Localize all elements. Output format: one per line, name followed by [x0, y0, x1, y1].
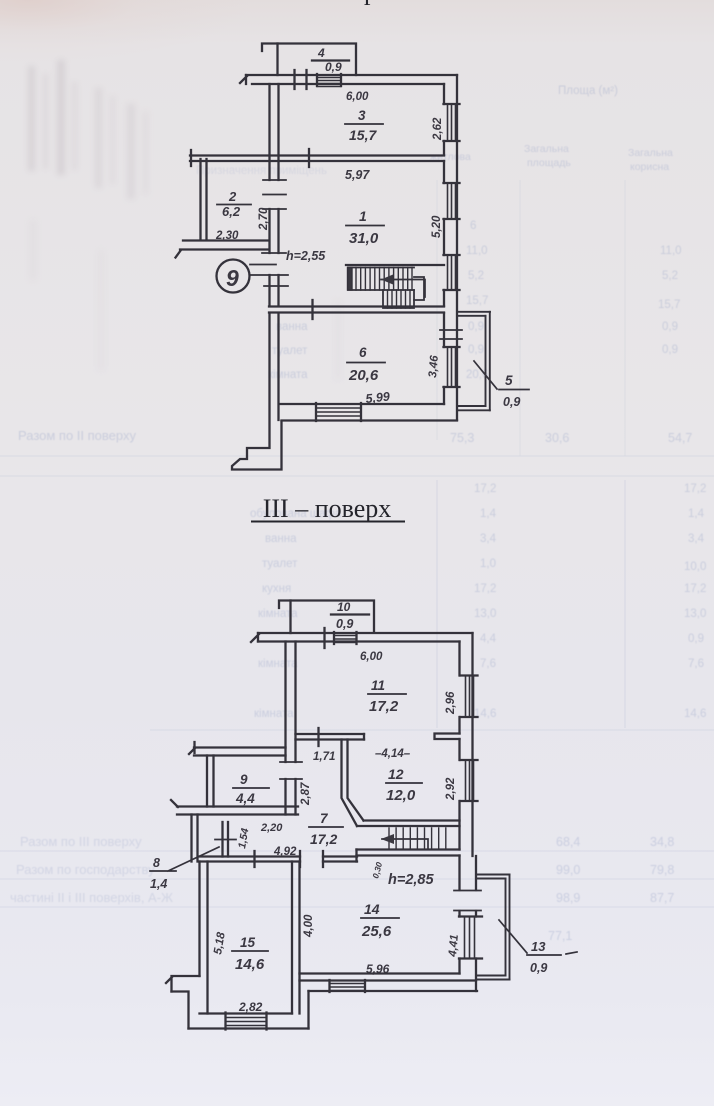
svg-text:5: 5: [505, 373, 513, 388]
svg-text:7,6: 7,6: [480, 658, 496, 670]
svg-text:III – поверх: III – поверх: [263, 494, 392, 523]
svg-text:2,70: 2,70: [258, 207, 270, 231]
svg-text:4,00: 4,00: [303, 914, 315, 938]
svg-text:9: 9: [240, 772, 248, 787]
svg-text:17,2: 17,2: [684, 483, 706, 495]
svg-text:3,4: 3,4: [480, 533, 497, 545]
svg-text:11,0: 11,0: [466, 245, 488, 257]
svg-text:0,9: 0,9: [468, 344, 484, 356]
svg-text:кімната: кімната: [258, 658, 298, 670]
svg-text:Разом по III поверху: Разом по III поверху: [20, 834, 142, 849]
svg-text:15,7: 15,7: [349, 127, 377, 143]
svg-text:17,2: 17,2: [684, 583, 706, 595]
svg-text:11: 11: [371, 678, 385, 693]
svg-text:0,9: 0,9: [325, 60, 342, 74]
svg-text:30,6: 30,6: [545, 431, 569, 445]
svg-text:14: 14: [364, 901, 380, 917]
svg-text:II – поверх: II – поверх: [270, 0, 390, 6]
svg-text:0,9: 0,9: [662, 321, 678, 333]
svg-text:h=2,55: h=2,55: [286, 249, 326, 263]
svg-text:34,8: 34,8: [650, 835, 674, 849]
svg-text:79,8: 79,8: [650, 863, 674, 877]
svg-text:кімната: кімната: [258, 608, 298, 620]
svg-text:кухня: кухня: [262, 583, 291, 595]
svg-text:75,3: 75,3: [450, 431, 474, 445]
svg-text:кімната: кімната: [254, 708, 294, 720]
svg-text:12,0: 12,0: [386, 787, 416, 804]
svg-text:2,87: 2,87: [300, 782, 312, 806]
svg-text:0,9: 0,9: [468, 321, 484, 333]
svg-text:площадь: площадь: [527, 157, 571, 169]
svg-text:0,9: 0,9: [336, 617, 353, 631]
svg-text:5,97: 5,97: [345, 168, 370, 182]
svg-text:1: 1: [359, 208, 367, 224]
svg-text:10,0: 10,0: [684, 561, 706, 573]
svg-text:25,6: 25,6: [361, 923, 392, 940]
svg-text:корисна: корисна: [630, 161, 669, 173]
svg-text:14,6: 14,6: [235, 956, 265, 973]
svg-text:13: 13: [531, 939, 546, 954]
svg-text:1,0: 1,0: [480, 558, 496, 570]
svg-text:17,2: 17,2: [310, 831, 337, 847]
svg-text:99,0: 99,0: [556, 863, 580, 877]
svg-text:4,41: 4,41: [447, 934, 461, 958]
svg-text:1,4: 1,4: [150, 877, 167, 891]
svg-text:1,71: 1,71: [313, 751, 335, 763]
svg-text:12: 12: [388, 766, 404, 782]
svg-text:54,7: 54,7: [668, 431, 692, 445]
svg-text:13,0: 13,0: [474, 608, 496, 620]
svg-text:частині II і III поверхів, А-Ж: частині II і III поверхів, А-Ж: [10, 890, 173, 905]
svg-text:2,20: 2,20: [260, 822, 283, 834]
svg-text:0,9: 0,9: [662, 344, 678, 356]
svg-text:4,4: 4,4: [480, 633, 497, 645]
svg-text:3,46: 3,46: [427, 354, 441, 378]
svg-text:5,2: 5,2: [662, 270, 678, 282]
svg-text:ванна: ванна: [265, 533, 297, 545]
svg-text:2,30: 2,30: [215, 230, 239, 242]
svg-text:17,2: 17,2: [369, 698, 399, 715]
svg-text:20,6: 20,6: [348, 367, 379, 384]
svg-text:–4,14–: –4,14–: [375, 748, 411, 760]
svg-text:9: 9: [226, 265, 239, 291]
svg-text:h=2,85: h=2,85: [388, 872, 434, 888]
svg-text:98,9: 98,9: [556, 891, 580, 905]
svg-text:6,00: 6,00: [360, 651, 383, 663]
svg-text:0,9: 0,9: [503, 395, 520, 409]
svg-text:2,96: 2,96: [445, 691, 457, 715]
svg-text:31,0: 31,0: [349, 230, 379, 247]
svg-text:6: 6: [359, 345, 367, 360]
svg-text:1,4: 1,4: [480, 508, 497, 520]
svg-text:2: 2: [228, 189, 237, 204]
svg-text:5,2: 5,2: [468, 270, 484, 282]
svg-text:10: 10: [337, 600, 351, 614]
svg-text:15,7: 15,7: [466, 295, 488, 307]
svg-text:ванна: ванна: [276, 321, 308, 333]
svg-text:7,6: 7,6: [688, 658, 704, 670]
svg-text:0,9: 0,9: [688, 633, 704, 645]
svg-text:2,92: 2,92: [445, 777, 457, 801]
svg-text:Загальна: Загальна: [524, 143, 569, 155]
svg-text:2,62: 2,62: [432, 117, 444, 141]
svg-text:87,7: 87,7: [650, 891, 674, 905]
svg-text:13,0: 13,0: [684, 608, 706, 620]
svg-text:Разом по II поверху: Разом по II поверху: [18, 428, 136, 443]
svg-text:3: 3: [358, 108, 366, 123]
svg-text:1,4: 1,4: [688, 508, 705, 520]
svg-text:2,82: 2,82: [238, 1000, 263, 1014]
svg-text:17,2: 17,2: [474, 483, 496, 495]
svg-text:15,7: 15,7: [658, 299, 680, 311]
svg-text:6,00: 6,00: [346, 91, 369, 103]
svg-text:Площа (м²): Площа (м²): [558, 85, 618, 97]
svg-text:туалет: туалет: [262, 558, 298, 570]
svg-text:Загальна: Загальна: [628, 147, 673, 159]
svg-text:17,2: 17,2: [474, 583, 496, 595]
svg-text:14,6: 14,6: [474, 708, 496, 720]
svg-text:77,1: 77,1: [548, 929, 572, 943]
svg-text:0,9: 0,9: [530, 961, 547, 975]
svg-text:14,6: 14,6: [684, 708, 706, 720]
svg-text:3,4: 3,4: [688, 533, 705, 545]
svg-text:Разом по господарству: Разом по господарству: [16, 862, 155, 877]
svg-text:8: 8: [153, 856, 160, 870]
svg-text:4: 4: [317, 46, 325, 60]
svg-text:кімната: кімната: [268, 369, 308, 381]
svg-text:15: 15: [240, 935, 256, 950]
svg-text:6: 6: [470, 220, 476, 232]
svg-text:11,0: 11,0: [660, 245, 682, 257]
svg-text:68,4: 68,4: [556, 835, 580, 849]
svg-text:Призначення приміщень: Призначення приміщень: [196, 165, 327, 177]
svg-text:4,4: 4,4: [235, 791, 255, 806]
svg-text:5,20: 5,20: [431, 215, 443, 238]
svg-text:6,2: 6,2: [222, 204, 241, 219]
